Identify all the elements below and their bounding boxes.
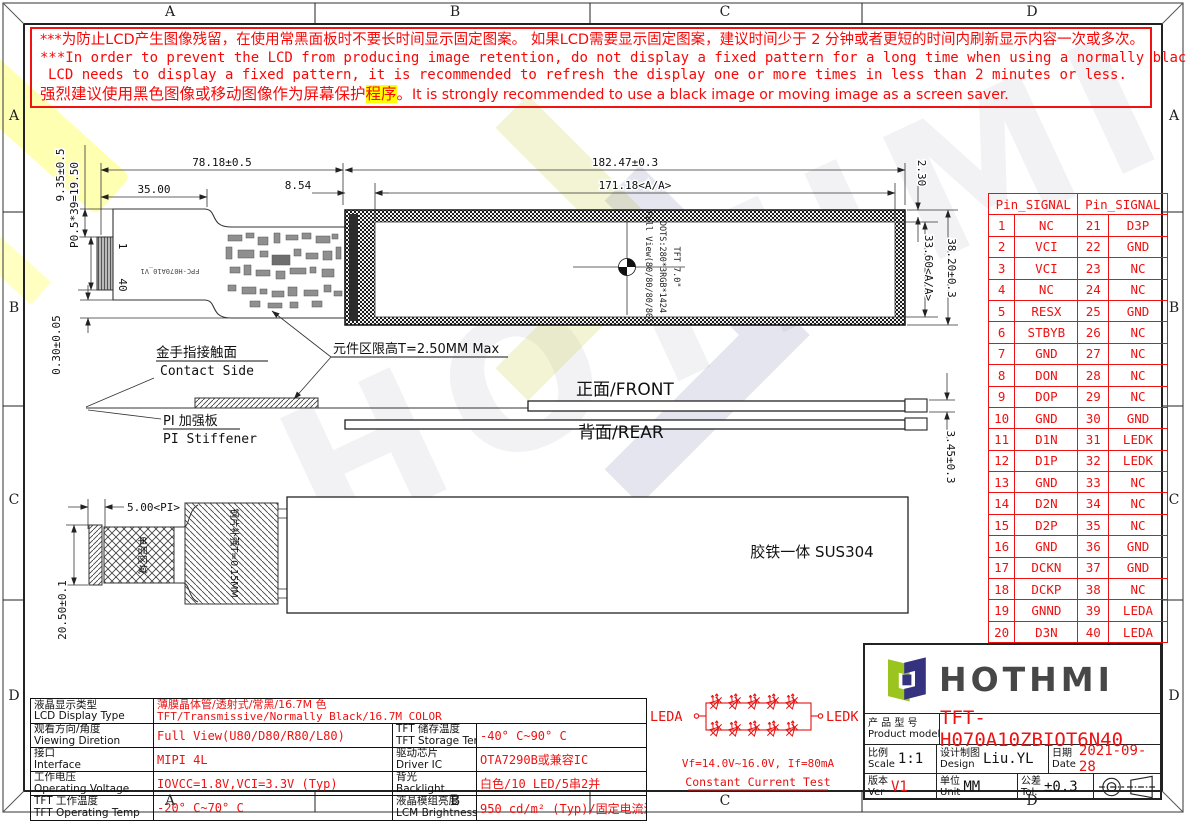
led-backlight-circuit: LEDA LEDK Vf=14.0V~16.0V, If=80mA Consta… bbox=[648, 683, 866, 803]
dim-fpc-length: 78.18±0.5 bbox=[192, 156, 252, 169]
pin-signal-cell: DON bbox=[1015, 365, 1078, 386]
pin-signal-header: Pin_SIGNAL bbox=[1078, 194, 1168, 215]
pin-row: 11D1N31LEDK bbox=[989, 429, 1168, 450]
tolerance-value: ±0.3 bbox=[1044, 779, 1078, 795]
pin-row: 16GND36GND bbox=[989, 536, 1168, 557]
pin-signal-cell: RESX bbox=[1015, 300, 1078, 321]
pin-signal-cell: D2P bbox=[1015, 514, 1078, 535]
pin-row: 19GNND39LEDA bbox=[989, 600, 1168, 621]
pi-stiffener-en: PI Stiffener bbox=[163, 432, 257, 447]
pin-row: 9DOP29NC bbox=[989, 386, 1168, 407]
pin-number-cell: 35 bbox=[1078, 514, 1108, 535]
spec-label-en: Operating Voltage bbox=[34, 784, 150, 796]
spec-label: 接口Interface bbox=[31, 748, 154, 772]
scale-design-date-row: 比例Scale 1:1 设计制图Design Liu.YL 日期Date 202… bbox=[865, 744, 1160, 773]
pin-row: 3VCI23NC bbox=[989, 258, 1168, 279]
dim-pin-pitch: P0.5*39=19.50 bbox=[68, 162, 81, 248]
pin-signal-cell: NC bbox=[1108, 386, 1167, 407]
pin-row: 5RESX25GND bbox=[989, 300, 1168, 321]
spec-label-zh: TFT 储存温度 bbox=[396, 724, 473, 736]
contact-side-en: Contact Side bbox=[160, 364, 254, 379]
brand-name: HOTHMI bbox=[939, 660, 1114, 699]
pin-signal-cell: GNND bbox=[1015, 600, 1078, 621]
spec-value: IOVCC=1.8V,VCI=3.3V (Typ) bbox=[154, 772, 393, 796]
version-label-en: Ver bbox=[868, 787, 888, 798]
dim-935: 9.35±0.5 bbox=[54, 149, 67, 202]
pin-number-cell: 19 bbox=[989, 600, 1015, 621]
spec-label: 观看方向/角度Viewing Diretion bbox=[31, 724, 154, 748]
leda-terminal-label: LEDA bbox=[650, 709, 683, 725]
pin-number-cell: 17 bbox=[989, 557, 1015, 578]
warning-saver-punct: 。 bbox=[397, 85, 413, 103]
dim-pi: 5.00<PI> bbox=[127, 501, 180, 514]
pin-signal-cell: DCKN bbox=[1015, 557, 1078, 578]
pin-number-cell: 12 bbox=[989, 450, 1015, 471]
warning-line-en1: ***In order to prevent the LCD from prod… bbox=[40, 50, 1142, 68]
display-view-label: Full View(80/80/80/80) bbox=[643, 211, 653, 324]
pin-number-cell: 32 bbox=[1078, 450, 1108, 471]
pin-number-cell: 21 bbox=[1078, 215, 1108, 236]
rear-end-cap bbox=[905, 418, 927, 430]
spec-label: TFT 工作温度TFT Operating Temp bbox=[31, 796, 154, 820]
spec-label-en: Viewing Diretion bbox=[34, 736, 150, 748]
pin-number-cell: 14 bbox=[989, 493, 1015, 514]
pin-number-cell: 5 bbox=[989, 300, 1015, 321]
pin-signal-cell: LEDA bbox=[1108, 621, 1167, 642]
pin-number-cell: 30 bbox=[1078, 407, 1108, 428]
pin-signal-cell: D2N bbox=[1015, 493, 1078, 514]
design-label-zh: 设计制图 bbox=[940, 748, 980, 759]
pin-signal-cell: NC bbox=[1015, 215, 1078, 236]
fpc-top-view: 1 40 FPC-H070A10_V1 bbox=[97, 209, 345, 318]
pin-number-cell: 3 bbox=[989, 258, 1015, 279]
pin-signal-cell: GND bbox=[1108, 407, 1167, 428]
pin-signal-cell: NC bbox=[1108, 472, 1167, 493]
pin-number-cell: 29 bbox=[1078, 386, 1108, 407]
pin-row: 1NC21D3P bbox=[989, 215, 1168, 236]
pin-row: 15D2P35NC bbox=[989, 514, 1168, 535]
pin-signal-header: Pin_SIGNAL bbox=[989, 194, 1078, 215]
pin-number-cell: 27 bbox=[1078, 343, 1108, 364]
led-test-note: Constant Current Test bbox=[685, 775, 830, 789]
ledk-terminal-label: LEDK bbox=[826, 709, 859, 725]
pin-signal-cell: GND bbox=[1015, 472, 1078, 493]
pin-row: 8DON28NC bbox=[989, 365, 1168, 386]
pin-signal-cell: NC bbox=[1108, 493, 1167, 514]
scale-cell: 比例Scale 1:1 bbox=[865, 745, 936, 773]
pin-row: 4NC24NC bbox=[989, 279, 1168, 300]
display-size-label: TFT 7.0" bbox=[671, 247, 681, 288]
spec-label: 工作电压Operating Voltage bbox=[31, 772, 154, 796]
spec-label-en: Driver IC bbox=[396, 760, 473, 772]
pin-number-cell: 22 bbox=[1078, 236, 1108, 257]
display-module: TFT 7.0" DOTS:280*3RGB*1424 Full View(80… bbox=[345, 210, 905, 325]
spec-label: 驱动芯片Driver IC bbox=[393, 748, 477, 772]
spec-row: 工作电压Operating Voltage IOVCC=1.8V,VCI=3.3… bbox=[31, 772, 647, 796]
dim-35: 35.00 bbox=[137, 183, 170, 196]
product-model-row: 产 品 型 号Product model TFT-H070A10ZBIOT6N4… bbox=[865, 713, 1160, 744]
pin-row: 6STBYB26NC bbox=[989, 322, 1168, 343]
spec-value: OTA7290B或兼容IC bbox=[477, 748, 647, 772]
date-value: 2021-09-28 bbox=[1079, 743, 1160, 775]
tolerance-label-en: Tol. bbox=[1021, 787, 1041, 798]
version-cell: 版本Ver V1 bbox=[865, 774, 936, 800]
spec-label-en: LCD Display Type bbox=[34, 711, 150, 723]
pin-signal-cell: STBYB bbox=[1015, 322, 1078, 343]
fpc-rear-view: 单层区域 钢片补强T=0.15MM 胶铁一体 SUS304 bbox=[89, 497, 908, 613]
drawing-sheet: { "warning": { "line1": "***为防止LCD产生图像残留… bbox=[0, 0, 1186, 815]
pin-row: 12D1P32LEDK bbox=[989, 450, 1168, 471]
version-label-zh: 版本 bbox=[868, 776, 888, 787]
pin-signal-cell: LEDA bbox=[1108, 600, 1167, 621]
pin-signal-cell: GND bbox=[1108, 300, 1167, 321]
spec-value: -20° C~70° C bbox=[154, 796, 393, 820]
spec-table: 液晶显示类型 LCD Display Type 薄膜晶体管/透射式/常黑/16.… bbox=[30, 698, 647, 821]
fpc-part-number: FPC-H070A10_V1 bbox=[140, 267, 199, 275]
title-block: HOTHMI 产 品 型 号Product model TFT-H070A10Z… bbox=[863, 643, 1162, 800]
pin-number-cell: 39 bbox=[1078, 600, 1108, 621]
unit-label-en: Unit bbox=[940, 787, 960, 798]
projection-symbol-cell bbox=[1093, 774, 1160, 800]
spec-label: 液晶模组亮度LCM Brightness bbox=[393, 796, 477, 820]
front-profile bbox=[528, 401, 905, 411]
pin-signal-cell: NC bbox=[1108, 514, 1167, 535]
product-model-label: 产 品 型 号Product model bbox=[865, 714, 939, 744]
pin-row: 20D3N40LEDA bbox=[989, 621, 1168, 642]
ver-unit-tol-row: 版本Ver V1 单位Unit MM 公差Tol. ±0.3 bbox=[865, 773, 1160, 800]
spec-row: 观看方向/角度Viewing Diretion Full View(U80/D8… bbox=[31, 724, 647, 748]
pin-number-cell: 13 bbox=[989, 472, 1015, 493]
pin1-label: 1 bbox=[116, 243, 129, 250]
pin-signal-cell: GND bbox=[1015, 343, 1078, 364]
pin-number-cell: 38 bbox=[1078, 579, 1108, 600]
unit-value: MM bbox=[963, 779, 980, 795]
first-angle-projection-icon bbox=[1098, 775, 1156, 799]
pin-number-cell: 7 bbox=[989, 343, 1015, 364]
dim-230: 2.30 bbox=[915, 160, 928, 187]
spec-value: MIPI 4L bbox=[154, 748, 393, 772]
tolerance-label-zh: 公差 bbox=[1021, 776, 1041, 787]
pin-signal-cell: NC bbox=[1108, 279, 1167, 300]
pin-number-cell: 11 bbox=[989, 429, 1015, 450]
pin-signal-cell: NC bbox=[1015, 279, 1078, 300]
date-label-zh: 日期 bbox=[1052, 748, 1076, 759]
spec-label: 背光Backlight bbox=[393, 772, 477, 796]
pin-number-cell: 15 bbox=[989, 514, 1015, 535]
pin-number-cell: 24 bbox=[1078, 279, 1108, 300]
pin-row: 17DCKN37GND bbox=[989, 557, 1168, 578]
pin-number-cell: 20 bbox=[989, 621, 1015, 642]
led-vf-spec: Vf=14.0V~16.0V, If=80mA bbox=[682, 757, 835, 770]
spec-value: 白色/10 LED/5串2并 bbox=[477, 772, 647, 796]
hothmi-logo-icon bbox=[879, 651, 933, 707]
tolerance-cell: 公差Tol. ±0.3 bbox=[1017, 774, 1093, 800]
scale-value: 1:1 bbox=[898, 751, 923, 767]
design-label-en: Design bbox=[940, 759, 980, 770]
spec-label-en: Interface bbox=[34, 760, 150, 772]
spec-label-en: Backlight bbox=[396, 784, 473, 796]
pin-number-cell: 8 bbox=[989, 365, 1015, 386]
dim-aa-height: 33.60<A/A> bbox=[922, 235, 935, 302]
scale-label-en: Scale bbox=[868, 759, 895, 770]
pin-signal-cell: D1N bbox=[1015, 429, 1078, 450]
unit-label-zh: 单位 bbox=[940, 776, 960, 787]
warning-line-saver: 强烈建议使用黑色图像或移动图像作为屏幕保护程序。It is strongly r… bbox=[40, 85, 1142, 105]
component-height-limit: 元件区限高T=2.50MM Max bbox=[333, 341, 500, 357]
date-label-en: Date bbox=[1052, 759, 1076, 770]
dim-outline-length: 182.47±0.3 bbox=[592, 156, 658, 169]
design-value: Liu.YL bbox=[983, 751, 1034, 767]
pin-table-body: 1NC21D3P2VCI22GND3VCI23NC4NC24NC5RESX25G… bbox=[989, 215, 1168, 643]
pin-number-cell: 37 bbox=[1078, 557, 1108, 578]
product-model-label-zh: 产 品 型 号 bbox=[868, 718, 940, 729]
pin-number-cell: 6 bbox=[989, 322, 1015, 343]
contact-side-zh: 金手指接触面 bbox=[156, 344, 237, 361]
pin-row: 2VCI22GND bbox=[989, 236, 1168, 257]
pin-table: Pin_SIGNAL Pin_SIGNAL 1NC21D3P2VCI22GND3… bbox=[988, 193, 1168, 643]
front-end-cap bbox=[905, 399, 927, 412]
spec-value: Full View(U80/D80/R80/L80) bbox=[154, 724, 393, 748]
spec-label-en: LCM Brightness bbox=[396, 808, 473, 820]
brand-row: HOTHMI bbox=[865, 645, 1160, 713]
pin-signal-cell: VCI bbox=[1015, 236, 1078, 257]
pin-number-cell: 33 bbox=[1078, 472, 1108, 493]
pin-signal-cell: NC bbox=[1108, 343, 1167, 364]
dim-2050: 20.50±0.1 bbox=[56, 580, 69, 640]
product-model-label-en: Product model bbox=[868, 729, 940, 740]
pin-number-cell: 4 bbox=[989, 279, 1015, 300]
pi-stiffener-zh: PI 加强板 bbox=[163, 414, 218, 429]
mechanical-drawing: 1 40 FPC-H070A10_V1 bbox=[28, 105, 980, 650]
spec-value: 950 cd/m² (Typ)/固定电流测试 bbox=[477, 796, 647, 820]
pin-number-cell: 34 bbox=[1078, 493, 1108, 514]
pin-signal-cell: NC bbox=[1108, 579, 1167, 600]
pin-row: 14D2N34NC bbox=[989, 493, 1168, 514]
pin-number-cell: 2 bbox=[989, 236, 1015, 257]
pin-signal-cell: NC bbox=[1108, 365, 1167, 386]
steel-stiffener-label: 钢片补强T=0.15MM bbox=[228, 508, 240, 597]
pin-number-cell: 9 bbox=[989, 386, 1015, 407]
spec-row: 液晶显示类型 LCD Display Type 薄膜晶体管/透射式/常黑/16.… bbox=[31, 699, 647, 724]
front-label: 正面/FRONT bbox=[576, 380, 674, 400]
spec-value: 薄膜晶体管/透射式/常黑/16.7M 色 TFT/Transmissive/No… bbox=[154, 699, 647, 724]
display-bonding-strip bbox=[349, 214, 358, 321]
pin-number-cell: 26 bbox=[1078, 322, 1108, 343]
spec-label-zh: 观看方向/角度 bbox=[34, 724, 150, 736]
pin-signal-cell: GND bbox=[1108, 236, 1167, 257]
pin-row: 18DCKP38NC bbox=[989, 579, 1168, 600]
gold-finger-connector bbox=[97, 237, 113, 290]
spec-value: -40° C~90° C bbox=[477, 724, 647, 748]
pin-number-cell: 40 bbox=[1078, 621, 1108, 642]
pin-number-cell: 18 bbox=[989, 579, 1015, 600]
spec-label: 液晶显示类型 LCD Display Type bbox=[31, 699, 154, 724]
single-layer-label: 单层区域 bbox=[136, 536, 148, 575]
pin-number-cell: 10 bbox=[989, 407, 1015, 428]
pin-number-cell: 16 bbox=[989, 536, 1015, 557]
scale-label-zh: 比例 bbox=[868, 748, 895, 759]
pin-signal-cell: GND bbox=[1015, 536, 1078, 557]
warning-saver-en: It is strongly recommended to use a blac… bbox=[412, 87, 1009, 103]
display-dots-label: DOTS:280*3RGB*1424 bbox=[657, 221, 667, 313]
date-cell: 日期Date 2021-09-28 bbox=[1048, 745, 1160, 773]
pin-signal-cell: LEDK bbox=[1108, 450, 1167, 471]
rear-label: 背面/REAR bbox=[578, 423, 664, 443]
component-zone-side bbox=[195, 398, 318, 408]
pi-zone bbox=[89, 525, 102, 585]
pin-signal-cell: D3P bbox=[1108, 215, 1167, 236]
dim-thickness: 3.45±0.3 bbox=[944, 431, 957, 484]
spec-label-en: TFT Storage Temp bbox=[396, 736, 473, 748]
pin-number-cell: 28 bbox=[1078, 365, 1108, 386]
pin-row: 10GND30GND bbox=[989, 407, 1168, 428]
pin-signal-cell: LEDK bbox=[1108, 429, 1167, 450]
spec-value-en: TFT/Transmissive/Normally Black/16.7M CO… bbox=[157, 711, 643, 723]
pin-signal-cell: DCKP bbox=[1015, 579, 1078, 600]
dim-outline-height: 38.20±0.3 bbox=[945, 238, 958, 298]
pin-signal-cell: GND bbox=[1015, 407, 1078, 428]
spec-row: TFT 工作温度TFT Operating Temp -20° C~70° C … bbox=[31, 796, 647, 820]
pin-signal-cell: DOP bbox=[1015, 386, 1078, 407]
pin40-label: 40 bbox=[116, 278, 129, 291]
pin-signal-cell: GND bbox=[1108, 557, 1167, 578]
sus-label: 胶铁一体 SUS304 bbox=[750, 543, 873, 561]
pin-number-cell: 1 bbox=[989, 215, 1015, 236]
pin-number-cell: 25 bbox=[1078, 300, 1108, 321]
pin-row: 7GND27NC bbox=[989, 343, 1168, 364]
pin-signal-cell: GND bbox=[1108, 536, 1167, 557]
spec-label: TFT 储存温度TFT Storage Temp bbox=[393, 724, 477, 748]
product-model-cell: TFT-H070A10ZBIOT6N40 bbox=[939, 714, 1160, 744]
warning-box: ***为防止LCD产生图像残留，在使用常黑面板时不要长时间显示固定图案。 如果L… bbox=[30, 27, 1152, 108]
dim-aa-length: 171.18<A/A> bbox=[599, 179, 672, 192]
dim-030: 0.30±0.05 bbox=[50, 315, 63, 375]
version-value: V1 bbox=[891, 779, 908, 795]
pin-number-cell: 23 bbox=[1078, 258, 1108, 279]
warning-saver-zh: 强烈建议使用黑色图像或移动图像作为屏幕保护 bbox=[40, 85, 366, 103]
warning-line-en2: LCD needs to display a fixed pattern, it… bbox=[40, 67, 1142, 85]
pin-signal-cell: D1P bbox=[1015, 450, 1078, 471]
warning-saver-highlight: 程序 bbox=[366, 85, 397, 103]
unit-cell: 单位Unit MM bbox=[936, 774, 1017, 800]
warning-line-zh: ***为防止LCD产生图像残留，在使用常黑面板时不要长时间显示固定图案。 如果L… bbox=[40, 31, 1142, 50]
spec-row: 接口Interface MIPI 4L 驱动芯片Driver IC OTA729… bbox=[31, 748, 647, 772]
pin-signal-cell: NC bbox=[1108, 322, 1167, 343]
pin-table-header: Pin_SIGNAL Pin_SIGNAL bbox=[989, 194, 1168, 215]
pin-number-cell: 31 bbox=[1078, 429, 1108, 450]
pin-number-cell: 36 bbox=[1078, 536, 1108, 557]
pin-signal-cell: VCI bbox=[1015, 258, 1078, 279]
design-cell: 设计制图Design Liu.YL bbox=[936, 745, 1048, 773]
spec-label-en: TFT Operating Temp bbox=[34, 808, 150, 820]
pin-signal-cell: NC bbox=[1108, 258, 1167, 279]
pin-row: 13GND33NC bbox=[989, 472, 1168, 493]
dim-854: 8.54 bbox=[285, 179, 312, 192]
pin-signal-cell: D3N bbox=[1015, 621, 1078, 642]
